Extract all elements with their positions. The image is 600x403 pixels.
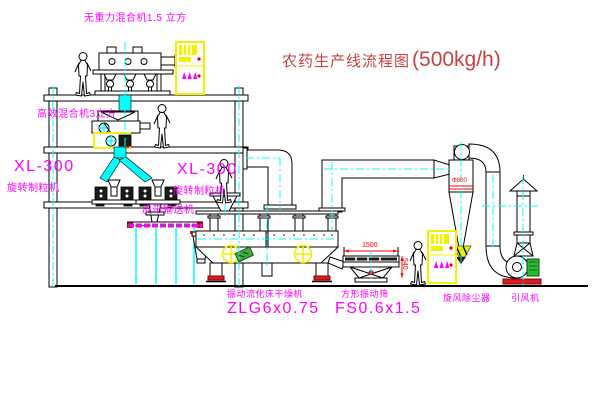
dimension-sieve-width: 1500 — [362, 242, 378, 249]
dimension-cyclone-band: Φ800 — [452, 178, 467, 184]
label-granulator-left-model: XL-300 — [14, 158, 75, 176]
label-dryer-model: ZLG6x0.75 — [227, 300, 320, 318]
title-capacity: (500kg/h) — [412, 48, 501, 72]
person-figure — [410, 242, 426, 286]
label-granulator-left-name: 旋转制粒机 — [7, 183, 60, 194]
label-sieve-name: 方形振动筛 — [341, 290, 389, 300]
label-cyclone: 旋风除尘器 — [443, 294, 491, 304]
label-granulator-center-name: 旋转制粒机 — [173, 186, 226, 197]
control-cabinet-1 — [176, 42, 204, 94]
control-cabinet-2 — [428, 231, 456, 283]
dimension-sieve-height: 540 — [401, 258, 408, 270]
diagram-title: 农药生产线流程图 (500kg/h) — [282, 48, 501, 72]
induced-draft-fan — [503, 256, 541, 284]
dryer-ports — [208, 214, 338, 231]
label-fan: 引风机 — [511, 294, 540, 304]
label-belt-conveyor: 皮带输送机 — [142, 205, 195, 216]
label-granulator-center-model: XL-300 — [177, 161, 238, 179]
fan-motor — [527, 259, 539, 276]
label-top-mixer: 无重力混合机1.5 立方 — [84, 13, 187, 24]
label-sieve-model: FS0.6x1.5 — [335, 300, 421, 318]
label-second-mixer: 高效混合机3立方 — [37, 109, 117, 120]
title-text: 农药生产线流程图 — [282, 50, 410, 71]
label-dryer-name: 振动流化床干燥机 — [227, 290, 303, 300]
gravity-free-mixer — [93, 47, 178, 95]
granulator-left — [92, 180, 136, 206]
cyclone-separator — [449, 144, 516, 278]
vibrating-sieve — [343, 247, 404, 282]
dryer-outlet-spout — [328, 257, 345, 269]
person-figure — [154, 105, 170, 149]
pesticide-line-diagram: 农药生产线流程图 (500kg/h) 无重力混合机1.5 立方 高效混合机3立方… — [0, 0, 600, 403]
person-figure — [75, 53, 91, 97]
dryer-legs — [206, 263, 332, 282]
mixer-feeders — [104, 74, 156, 91]
fan-base — [503, 279, 541, 284]
